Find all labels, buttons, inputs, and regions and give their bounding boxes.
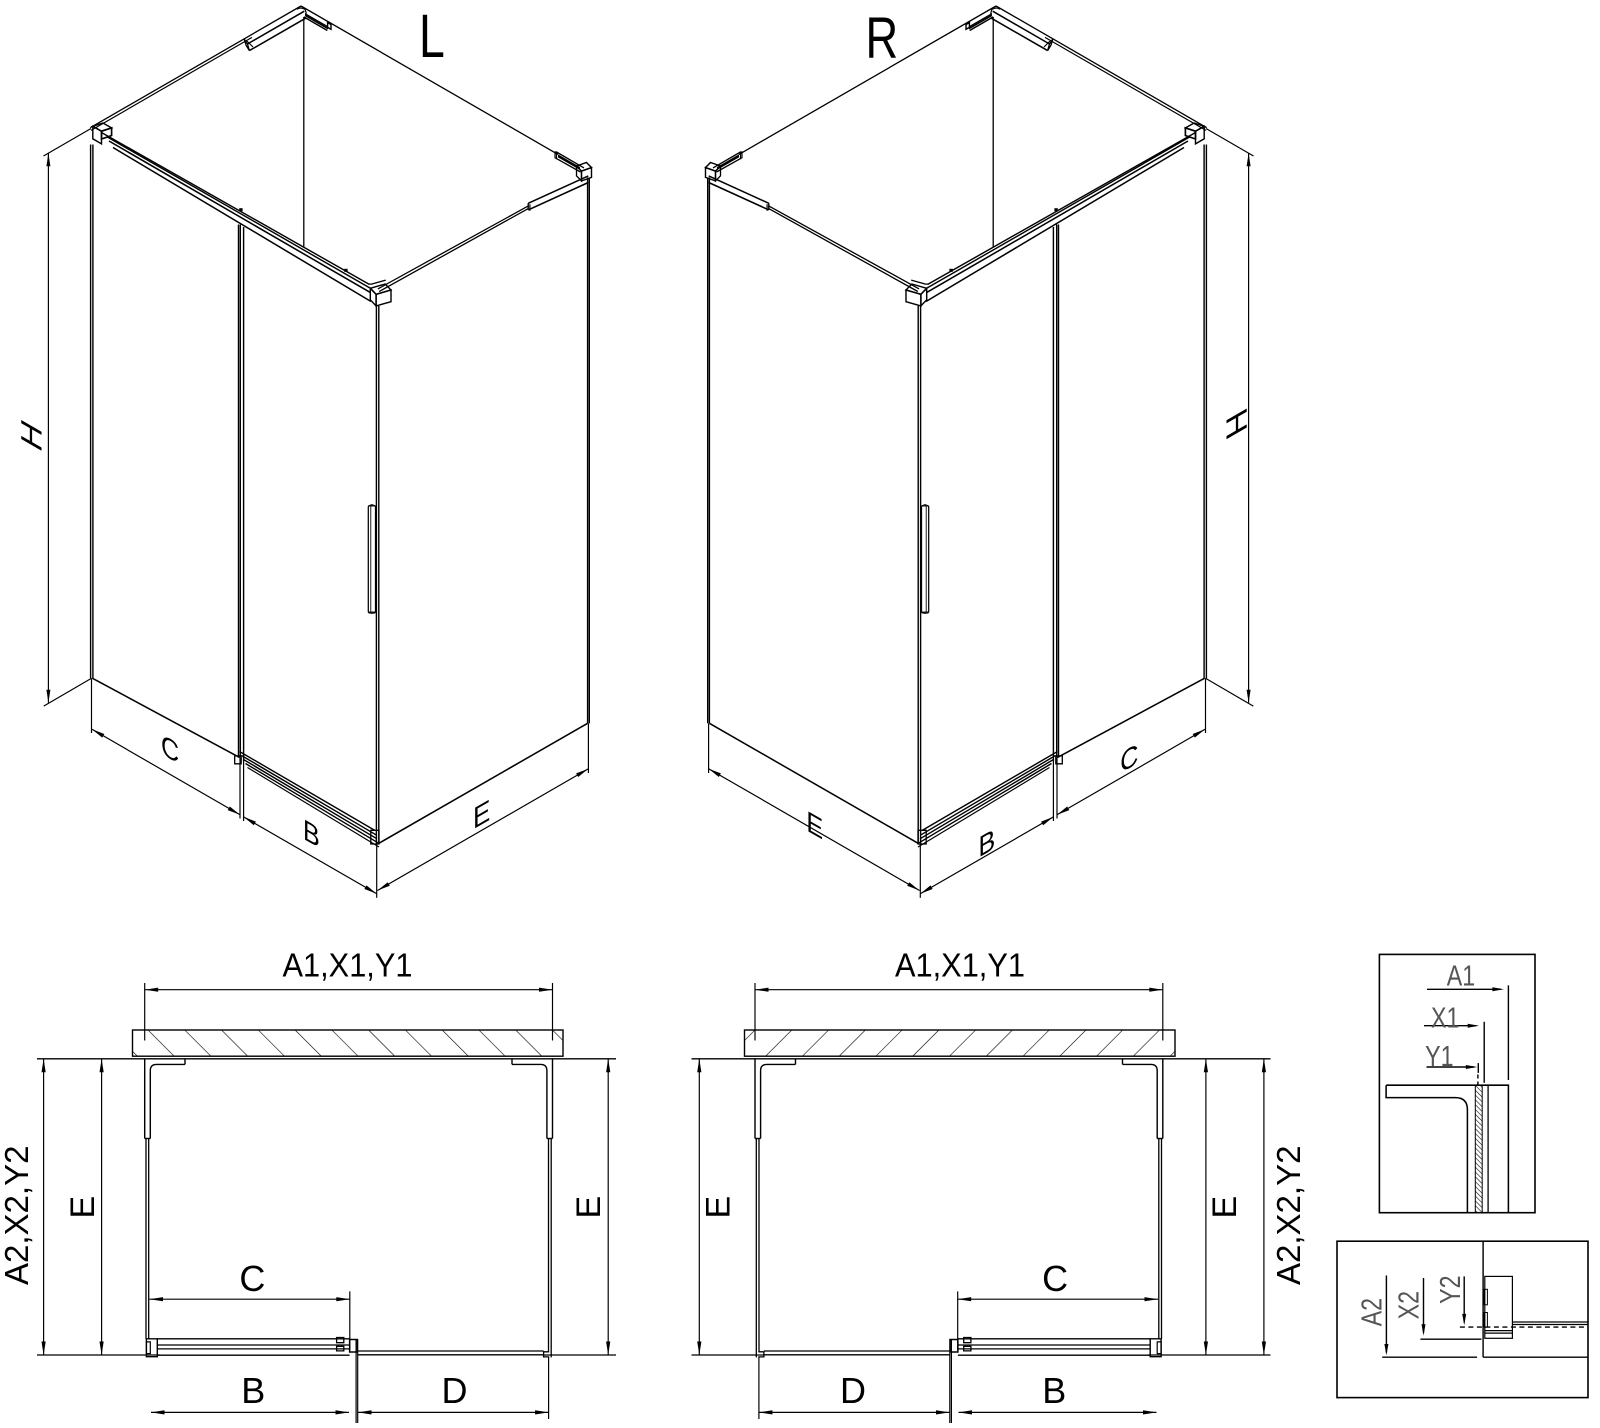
svg-text:D: D [442,1370,468,1411]
svg-text:B: B [1042,1370,1066,1411]
svg-text:A2: A2 [1355,1298,1388,1326]
svg-text:L: L [419,3,445,71]
svg-text:B: B [241,1370,265,1411]
svg-text:A1: A1 [1447,959,1475,992]
svg-text:R: R [866,6,899,71]
svg-text:E: E [1206,1196,1244,1219]
svg-text:A1,X1,Y1: A1,X1,Y1 [283,947,413,984]
svg-text:C: C [239,1258,265,1299]
svg-text:C: C [1042,1258,1068,1299]
svg-text:Y2: Y2 [1433,1276,1466,1304]
svg-text:X1: X1 [1431,1001,1459,1034]
svg-text:E: E [700,1196,738,1219]
svg-text:A2,X2,Y2: A2,X2,Y2 [0,1146,35,1285]
svg-text:A1,X1,Y1: A1,X1,Y1 [895,947,1025,984]
svg-text:X2: X2 [1392,1291,1425,1319]
svg-text:E: E [570,1196,608,1219]
svg-text:D: D [840,1370,866,1411]
svg-text:E: E [64,1196,102,1219]
svg-text:Y1: Y1 [1425,1039,1453,1072]
svg-text:A2,X2,Y2: A2,X2,Y2 [1270,1146,1307,1285]
